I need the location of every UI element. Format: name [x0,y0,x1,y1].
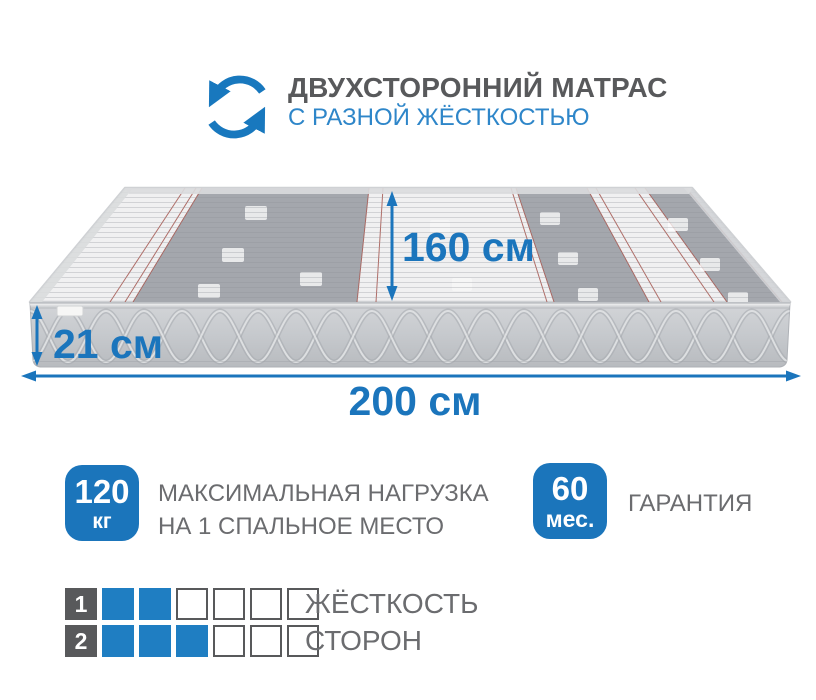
max-load-value: 120 [74,475,129,508]
mattress-tag [57,306,83,316]
firmness-square [213,625,245,657]
firmness-square [102,588,134,620]
firmness-square [250,588,282,620]
page-title: ДВУХСТОРОННИЙ МАТРАС [288,72,708,104]
firmness-square [213,588,245,620]
max-load-badge: 120 кг [65,465,139,541]
dim-label-length: 200 см [290,378,540,425]
firmness-square [139,625,171,657]
firmness-scale-row [102,625,324,657]
firmness-row-1: 1 [65,588,324,620]
firmness-square [176,588,208,620]
flip-rotate-icon [198,68,276,146]
firmness-side-number: 1 [65,588,97,620]
firmness-label: ЖЁСТКОСТЬ СТОРОН [305,585,478,659]
warranty-value: 60 [552,472,589,505]
max-load-label: МАКСИМАЛЬНАЯ НАГРУЗКА НА 1 СПАЛЬНОЕ МЕСТ… [158,477,489,543]
page-subtitle: С РАЗНОЙ ЖЁСТКОСТЬЮ [288,104,708,132]
dim-label-height: 21 см [53,321,163,368]
firmness-row-2: 2 [65,625,324,657]
firmness-square [250,625,282,657]
dim-label-width: 160 см [402,224,535,271]
warranty-badge: 60 мес. [533,463,607,539]
firmness-side-number: 2 [65,625,97,657]
firmness-scale: 1 2 [65,588,324,662]
firmness-square [176,625,208,657]
max-load-unit: кг [92,511,111,532]
warranty-label: ГАРАНТИЯ [628,487,752,520]
firmness-square [139,588,171,620]
firmness-square [102,625,134,657]
warranty-unit: мес. [546,508,595,531]
mattress-infographic: ДВУХСТОРОННИЙ МАТРАС С РАЗНОЙ ЖЁСТКОСТЬЮ [0,0,816,700]
firmness-scale-row [102,588,324,620]
